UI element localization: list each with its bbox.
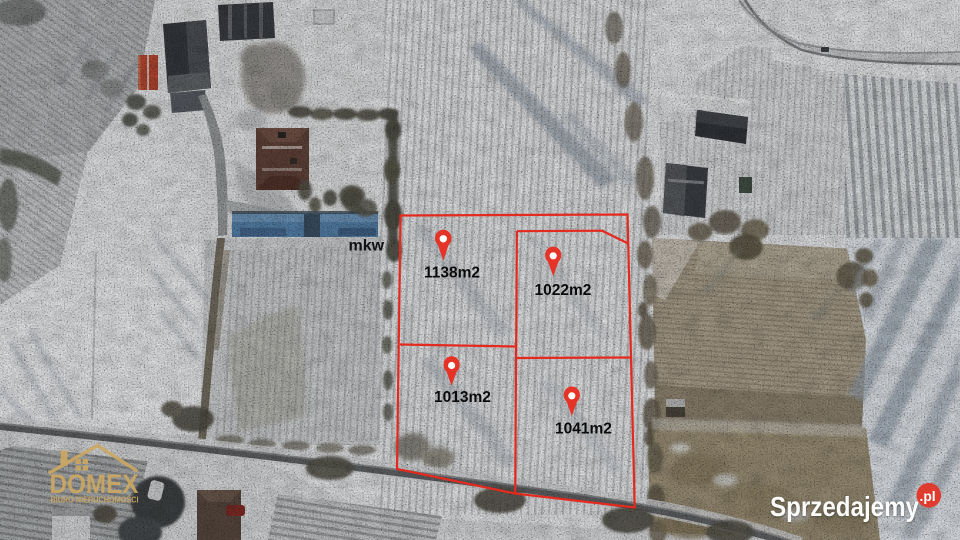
svg-text:1013m2: 1013m2 <box>434 389 491 406</box>
svg-text:1022m2: 1022m2 <box>535 282 592 299</box>
svg-text:Sprzedajemy: Sprzedajemy <box>770 491 920 522</box>
svg-text:1041m2: 1041m2 <box>555 421 612 438</box>
svg-text:mkw: mkw <box>349 238 385 255</box>
svg-text:.pl: .pl <box>920 489 936 504</box>
svg-text:DOMEX: DOMEX <box>50 469 139 499</box>
svg-text:1138m2: 1138m2 <box>424 265 480 282</box>
svg-text:BIURO NIERUCHOMOŚCI: BIURO NIERUCHOMOŚCI <box>51 496 139 505</box>
